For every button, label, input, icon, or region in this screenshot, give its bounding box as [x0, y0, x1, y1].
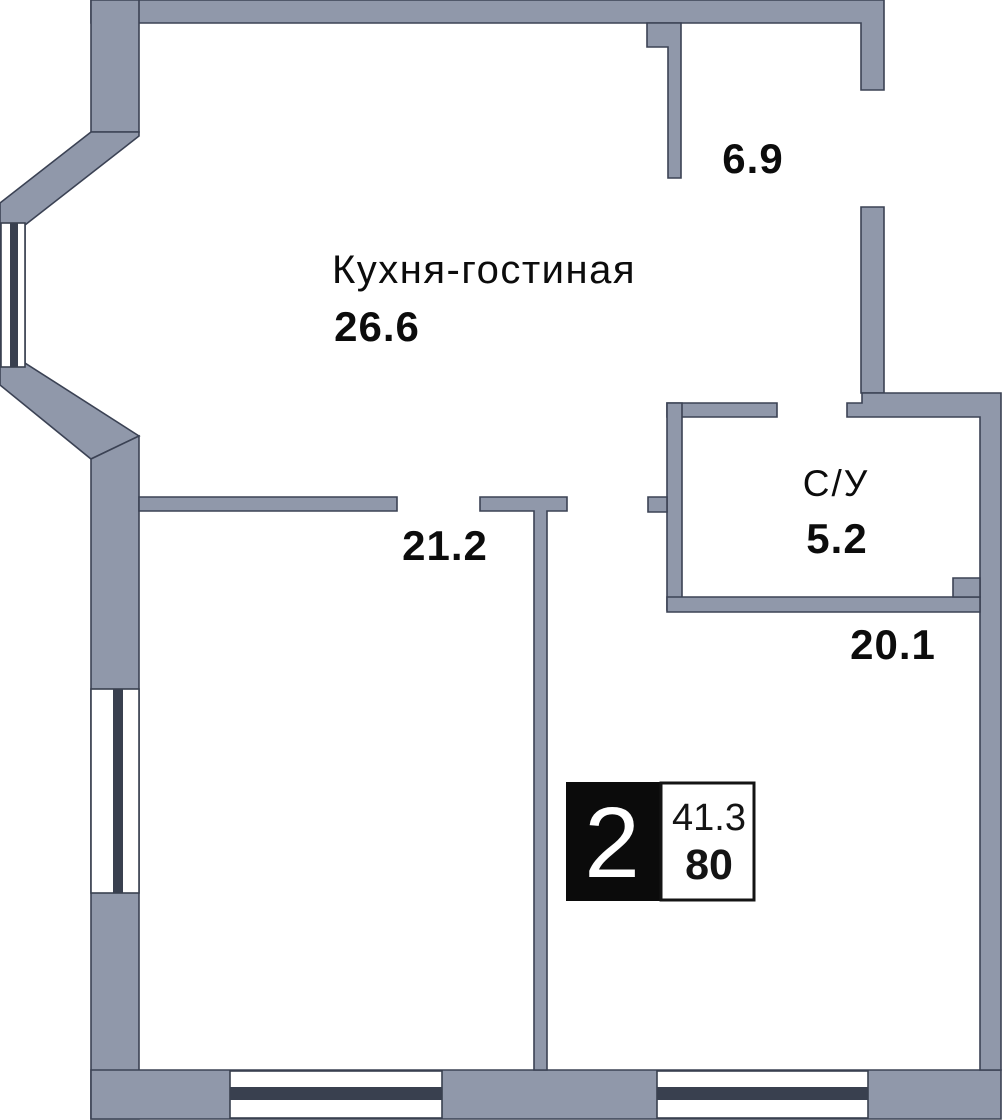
left-window-glass	[113, 689, 123, 893]
room-left-area: 21.2	[402, 522, 488, 569]
wall-right-upper	[861, 207, 884, 393]
room-labels: Кухня-гостиная 26.6 6.9 С/У 5.2 21.2 20.…	[332, 135, 936, 668]
room-right-area: 20.1	[850, 621, 936, 668]
badge-area-bottom: 80	[685, 841, 733, 889]
kitchen-living-area: 26.6	[334, 303, 420, 350]
wall-bathroom-bottom	[667, 597, 980, 612]
apartment-badge: 2 41.3 80	[567, 783, 754, 900]
badge-area-top: 41.3	[672, 797, 746, 839]
bay-window-glass	[10, 223, 18, 367]
bathroom-area: 5.2	[806, 515, 867, 562]
wall-bathroom-stub	[648, 497, 667, 512]
floor-plan-canvas: Кухня-гостиная 26.6 6.9 С/У 5.2 21.2 20.…	[0, 0, 1002, 1120]
bathroom-label: С/У	[803, 463, 870, 504]
wall-balcony-partition	[647, 23, 681, 178]
wall-bathroom-top	[667, 403, 777, 417]
wall-t-divider	[480, 497, 567, 1070]
wall-room-divider	[139, 497, 397, 511]
bottom-window-right-glass	[657, 1087, 868, 1100]
wall-bathroom-step	[953, 578, 980, 597]
wall-right-main	[847, 393, 1001, 1070]
floor-plan: Кухня-гостиная 26.6 6.9 С/У 5.2 21.2 20.…	[0, 0, 1002, 1120]
bottom-window-left-glass	[230, 1087, 442, 1100]
balcony-area: 6.9	[722, 135, 783, 182]
badge-room-count: 2	[584, 787, 640, 899]
wall-top	[91, 0, 884, 90]
wall-bathroom-left	[667, 403, 682, 610]
kitchen-living-label: Кухня-гостиная	[332, 248, 636, 292]
wall-left-upper	[91, 0, 139, 132]
